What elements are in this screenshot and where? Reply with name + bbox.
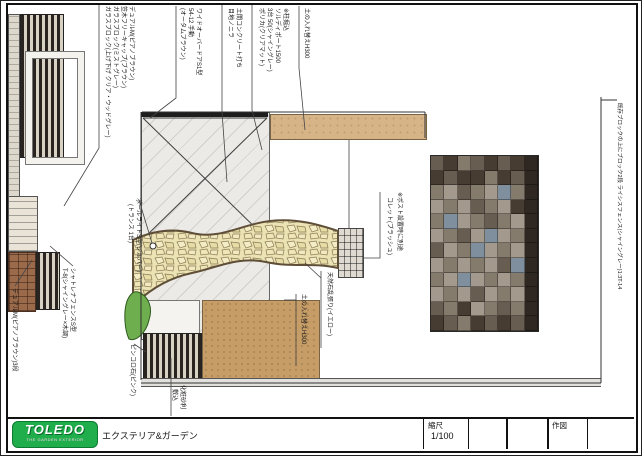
scale-label: 縮尺 [428, 420, 443, 431]
scale-value: 1/100 [431, 431, 454, 441]
label-post-product: コレット(ブラッシュ) [385, 197, 392, 255]
title-block-divider [506, 417, 508, 449]
toledo-logo-text: TOLEDO [13, 422, 97, 437]
label-pinkoro: ピンコロ石(ピンク) [128, 344, 135, 396]
slab-x-bracing [143, 118, 267, 239]
title-block-divider [423, 417, 424, 449]
label-kasagi-cap: 笠木フリーキャップ(ブラウン) [119, 6, 126, 88]
label-overdoor-color: (オータムブラウン) [178, 8, 185, 60]
label-gravel: 化粧砂利 [178, 385, 185, 409]
label-gravel-laying: 敷込 [170, 389, 177, 401]
label-soil-mid: 土の入れ替えH300 [299, 294, 306, 344]
label-chatrena-fence: シャトレナフェンスS型 [68, 268, 75, 332]
label-glass-block-2: ガラスブロック(上げ下げ クリア・ウッドグレー) [103, 6, 110, 138]
drawn-by-label: 作図 [552, 420, 567, 431]
label-glass-block-1: ガラスブロック(ミストグレー) [111, 6, 118, 88]
label-dual-block: デュアルM(ピアノブラウン)3段 [10, 288, 17, 372]
label-doma-concrete: 土間コンクリート打ち [234, 8, 241, 68]
label-carport-model: ソルディポート1500 [273, 8, 280, 63]
plan-linework [0, 0, 642, 456]
title-band-top-line [6, 417, 634, 419]
label-carport-spec: 3台 50(シャイングレー) [265, 8, 272, 72]
label-dual-fence: デュアルM(ピアノブラウン) [127, 6, 134, 80]
label-overdoor-model: ワイドオーバードアS1型 [194, 8, 201, 75]
company-subtitle: エクステリア&ガーデン [102, 429, 198, 442]
label-right-fence: 既存ブロックの上にブロック2段 ライシスフェンス(シャイングレー)1:3T-14 [615, 103, 622, 289]
label-carport-roof: ポリカ(クリアマット) [257, 8, 264, 66]
label-pole-light-trans: (トランス 1台) [126, 204, 133, 243]
label-doma-joint: 目地ノニラ [226, 8, 233, 38]
title-block-divider [587, 417, 588, 449]
label-soil-top: 土の入れ替えH300 [302, 8, 309, 58]
planting-blob [125, 292, 151, 340]
toledo-logo-tagline: THE GARDEN EXTERIOR [13, 437, 97, 442]
label-natural-stone: 天然石乱張り(イエロー) [325, 272, 332, 336]
flagstone-path [133, 220, 338, 302]
label-post-note: ※ポスト設置時に別途 [395, 192, 402, 251]
title-block-divider [547, 417, 549, 449]
pole-light-symbol [150, 243, 156, 249]
label-pole-light: ポールライトS型(シルバー) [134, 198, 141, 272]
toledo-logo: TOLEDO THE GARDEN EXTERIOR [12, 421, 98, 448]
label-overdoor-size: 54-12 手動 [186, 8, 193, 37]
label-carport-note: ※柱掘込 [281, 8, 288, 31]
label-chatrena-spec: T-8(シャイングレー×木調) [60, 268, 67, 338]
title-block-divider [468, 417, 469, 449]
